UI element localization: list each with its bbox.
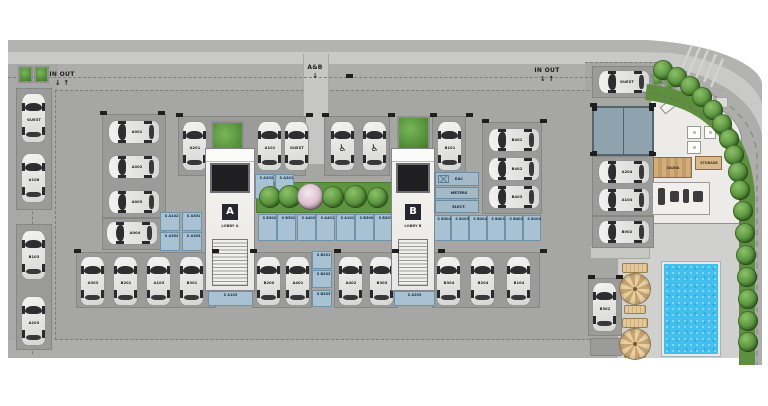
wall-column-mark bbox=[346, 74, 353, 78]
parking-spot-label: B104 bbox=[513, 281, 524, 285]
wall-column-mark bbox=[466, 113, 473, 117]
bottom-apron bbox=[8, 340, 658, 358]
gym-equipment-icon bbox=[670, 191, 679, 202]
parking-spot-label: A201 bbox=[189, 146, 200, 150]
storage-unit-label: S B303 bbox=[379, 216, 389, 220]
car-rear-window bbox=[261, 295, 276, 300]
wall-column-mark bbox=[616, 275, 623, 279]
parking-spot-car: A106 bbox=[21, 153, 46, 203]
storage-unit-label: S B204 bbox=[473, 217, 482, 221]
lobby-label: LOBBY A bbox=[216, 224, 245, 228]
parking-spot-label: B204 bbox=[477, 281, 488, 285]
shaft-hatch-icon bbox=[438, 175, 449, 183]
parking-spot-label: A204 bbox=[622, 170, 633, 174]
car-windshield bbox=[334, 131, 351, 139]
wall-column-mark bbox=[540, 119, 547, 123]
parking-pad bbox=[590, 338, 622, 356]
pool-lounger bbox=[624, 305, 646, 314]
wall-column-mark bbox=[430, 113, 437, 117]
canopy-divider bbox=[623, 108, 624, 154]
wall-column-mark bbox=[649, 152, 656, 156]
storage-unit-label: S A102 bbox=[165, 214, 175, 218]
parking-spot-label: B200 bbox=[263, 281, 274, 285]
car-rear-window bbox=[184, 295, 199, 300]
parking-spot-label: A103 bbox=[153, 281, 164, 285]
storage-unit-label: S B201 bbox=[317, 253, 327, 257]
car-windshield bbox=[510, 266, 527, 274]
wall-column-mark bbox=[334, 249, 341, 253]
storage-unit-label: S A203 bbox=[403, 293, 426, 297]
storage-unit-label: S A202 bbox=[260, 176, 270, 180]
site-plan: S A202S A201S A102S A301S A302S A303S A1… bbox=[0, 0, 768, 406]
car-windshield bbox=[117, 266, 134, 274]
utility-room-label: EAC bbox=[455, 177, 463, 181]
storage-unit-label: S A201 bbox=[280, 176, 290, 180]
car-windshield bbox=[498, 189, 506, 205]
storage-unit-label: S A101 bbox=[341, 216, 351, 220]
car-windshield bbox=[608, 74, 616, 90]
storage-unit: S B301 bbox=[277, 214, 296, 241]
car-rear-window bbox=[26, 269, 41, 274]
parking-spot-car: B002 bbox=[598, 220, 650, 244]
parking-spot-car: B401 bbox=[488, 128, 540, 152]
wall-column-mark bbox=[392, 249, 399, 253]
parking-spot-handicap-car: ♿ bbox=[330, 121, 355, 171]
wall-column-mark bbox=[482, 119, 489, 123]
storage-unit: S A102 bbox=[160, 212, 180, 231]
lobby-label: LOBBY B bbox=[400, 224, 425, 228]
storage-unit-label: S A301 bbox=[187, 214, 197, 218]
storage-unit-label: S A401 bbox=[321, 216, 331, 220]
parking-spot-label: A106 bbox=[28, 178, 39, 182]
parking-spot-car: A004 bbox=[106, 221, 158, 245]
wall-column-mark bbox=[588, 275, 595, 279]
entrance-arrows: ↓ ↑ bbox=[529, 75, 565, 83]
parking-spot-label: B103 bbox=[28, 255, 39, 259]
car-rear-window bbox=[475, 295, 490, 300]
car-windshield bbox=[498, 161, 506, 177]
car-windshield bbox=[261, 131, 278, 139]
parking-spot-car: GUEST bbox=[21, 93, 46, 143]
entrance-arrows: ↓ ↑ bbox=[44, 79, 80, 87]
car-windshield bbox=[498, 132, 506, 148]
planter-box bbox=[397, 116, 430, 152]
car-rear-window bbox=[639, 165, 644, 179]
car-windshield bbox=[288, 131, 305, 139]
parking-spot-car: B402 bbox=[488, 157, 540, 181]
storage-unit: S B302 bbox=[258, 214, 277, 241]
parking-spot-label: A004 bbox=[130, 231, 141, 235]
storage-room-label: STORAGE bbox=[700, 161, 717, 165]
parking-spot-car: A203 bbox=[21, 296, 46, 346]
parking-spot-car: B103 bbox=[21, 230, 46, 280]
tower-letter-badge: B bbox=[405, 204, 421, 220]
car-windshield bbox=[474, 266, 491, 274]
lobby-entry bbox=[206, 149, 254, 162]
storage-unit: S B104 bbox=[523, 215, 541, 241]
parking-spot-car: GUEST bbox=[284, 121, 309, 171]
car-windshield bbox=[596, 292, 613, 300]
entrance-sign-label: IN OUT bbox=[529, 67, 565, 74]
parking-spot-label: B302 bbox=[599, 307, 610, 311]
parking-spot-car: A001 bbox=[108, 120, 160, 144]
umbrella-icon bbox=[620, 329, 650, 359]
parking-spot-label: B304 bbox=[443, 281, 454, 285]
parking-spot-car: A201 bbox=[182, 121, 207, 171]
storage-unit-label: S B401 bbox=[491, 217, 500, 221]
hedge-tree-icon bbox=[736, 245, 756, 265]
car-windshield bbox=[608, 224, 616, 240]
car-windshield bbox=[373, 266, 390, 274]
entrance-sign-label: A&B bbox=[300, 64, 330, 71]
wall-column-mark bbox=[100, 111, 107, 115]
parking-spot-label: B403 bbox=[512, 195, 523, 199]
utility-room-label: METERS bbox=[450, 191, 467, 195]
tree-icon bbox=[367, 187, 388, 208]
planter-box bbox=[18, 66, 33, 83]
storage-unit-label: S B302 bbox=[263, 216, 273, 220]
storage-unit: S B300 bbox=[355, 214, 374, 241]
car-windshield bbox=[25, 103, 42, 111]
storage-unit-label: S B104 bbox=[527, 217, 536, 221]
parking-spot-car: A303 bbox=[80, 256, 105, 306]
swimming-pool bbox=[662, 262, 720, 356]
parking-spot-label: B303 bbox=[376, 281, 387, 285]
car-windshield bbox=[608, 164, 616, 180]
parking-spot-label: B401 bbox=[512, 138, 523, 142]
storage-unit-label: S B304 bbox=[437, 217, 446, 221]
car-windshield bbox=[116, 225, 124, 241]
wall-column-mark bbox=[176, 113, 183, 117]
storage-unit: S A203 bbox=[394, 291, 435, 306]
storage-room: STORAGE bbox=[695, 156, 722, 170]
entrance-left: IN OUT↓ ↑ bbox=[44, 71, 80, 87]
utility-room-label: ELECT. bbox=[452, 204, 466, 208]
car-windshield bbox=[608, 192, 616, 208]
parking-spot-label: A104 bbox=[622, 198, 633, 202]
car-rear-window bbox=[118, 295, 133, 300]
car-rear-window bbox=[374, 295, 389, 300]
storage-unit-label: S A302 bbox=[165, 234, 175, 238]
car-windshield bbox=[289, 266, 306, 274]
car-rear-window bbox=[442, 160, 457, 165]
parking-spot-label: A001 bbox=[132, 130, 143, 134]
tower-b-core: BLOBBY B bbox=[391, 148, 435, 291]
storage-unit: S B201 bbox=[312, 251, 332, 269]
storage-unit: S A401 bbox=[316, 214, 335, 241]
hedge-tree-icon bbox=[738, 332, 758, 352]
wall-column-mark bbox=[540, 249, 547, 253]
parking-spot-car: B301 bbox=[179, 256, 204, 306]
parking-spot-label: A203 bbox=[28, 321, 39, 325]
storage-unit: S A301 bbox=[182, 212, 202, 231]
car-rear-window bbox=[639, 75, 644, 89]
car-rear-window bbox=[441, 295, 456, 300]
parking-spot-label: B301 bbox=[186, 281, 197, 285]
elevator-shaft bbox=[396, 163, 430, 193]
storage-unit-label: S B300 bbox=[360, 216, 370, 220]
car-rear-window bbox=[597, 321, 612, 326]
parking-spot-label: B002 bbox=[622, 230, 633, 234]
sauna-label: SAUNA bbox=[666, 166, 679, 170]
utility-room: EAC bbox=[435, 172, 479, 186]
gym-equipment-icon bbox=[658, 188, 665, 205]
car-rear-window bbox=[511, 295, 526, 300]
elevator-shaft bbox=[210, 163, 250, 193]
hedge-tree-icon bbox=[738, 311, 758, 331]
wall-column-mark bbox=[590, 103, 597, 107]
storage-unit: S B304 bbox=[433, 215, 451, 241]
parking-spot-car: B104 bbox=[506, 256, 531, 306]
storage-unit-label: S A103 bbox=[218, 293, 243, 297]
parking-spot-label: A401 bbox=[292, 281, 303, 285]
storage-unit: S B401 bbox=[487, 215, 505, 241]
bathroom-fixture bbox=[687, 141, 701, 154]
storage-unit: S A302 bbox=[160, 232, 180, 251]
parking-spot-label: B101 bbox=[444, 146, 455, 150]
storage-unit-label: S B103 bbox=[455, 217, 464, 221]
storage-unit: S B402 bbox=[505, 215, 523, 241]
umbrella-icon bbox=[620, 274, 650, 304]
car-windshield bbox=[441, 131, 458, 139]
sauna-room: SAUNA bbox=[653, 157, 692, 178]
storage-unit-label: S A303 bbox=[187, 234, 197, 238]
wall-column-mark bbox=[158, 111, 165, 115]
car-windshield bbox=[118, 124, 126, 140]
hedge-tree-icon bbox=[737, 267, 757, 287]
tower-letter-badge: A bbox=[222, 204, 238, 220]
parking-spot-label: B402 bbox=[512, 167, 523, 171]
parking-spot-car: A003 bbox=[108, 190, 160, 214]
parking-spot-car: B304 bbox=[436, 256, 461, 306]
parking-spot-car: GUEST bbox=[598, 70, 650, 94]
flowering-tree-icon bbox=[297, 183, 324, 210]
car-rear-window bbox=[367, 160, 382, 165]
parking-spot-car: B200 bbox=[256, 256, 281, 306]
car-windshield bbox=[440, 266, 457, 274]
parking-spot-car: A104 bbox=[598, 188, 650, 212]
parking-spot-car: B101 bbox=[437, 121, 462, 171]
storage-unit-label: S B301 bbox=[282, 216, 292, 220]
car-rear-window bbox=[149, 160, 154, 174]
storage-unit-label: S B202 bbox=[317, 272, 327, 276]
car-rear-window bbox=[26, 192, 41, 197]
entrance-lobbies: A&B↓ bbox=[300, 64, 330, 80]
car-rear-window bbox=[187, 160, 202, 165]
car-rear-window bbox=[26, 335, 41, 340]
wall-column-mark bbox=[306, 113, 313, 117]
car-windshield bbox=[25, 163, 42, 171]
lobby-entry bbox=[392, 149, 434, 162]
gym-equipment-icon bbox=[683, 189, 689, 203]
staircase bbox=[398, 239, 428, 286]
parking-spot-car: A402 bbox=[338, 256, 363, 306]
car-windshield bbox=[118, 159, 126, 175]
car-rear-window bbox=[529, 162, 534, 176]
hedge-tree-icon bbox=[733, 201, 753, 221]
car-windshield bbox=[25, 306, 42, 314]
parking-spot-label: A003 bbox=[132, 200, 143, 204]
parking-spot-car: A002 bbox=[108, 155, 160, 179]
guest-bay-line bbox=[585, 62, 657, 63]
parking-spot-car: A101 bbox=[257, 121, 282, 171]
car-windshield bbox=[25, 240, 42, 248]
parking-spot-label: GUEST bbox=[27, 118, 41, 122]
parking-spot-car: B201 bbox=[113, 256, 138, 306]
car-windshield bbox=[183, 266, 200, 274]
parking-spot-car: B302 bbox=[592, 282, 617, 332]
car-rear-window bbox=[262, 160, 277, 165]
car-rear-window bbox=[343, 295, 358, 300]
storage-unit-label: S B402 bbox=[509, 217, 518, 221]
storage-unit: S B204 bbox=[469, 215, 487, 241]
parking-spot-car: B403 bbox=[488, 185, 540, 209]
pool-lounger bbox=[622, 263, 648, 273]
car-rear-window bbox=[151, 295, 166, 300]
car-rear-window bbox=[147, 226, 152, 240]
car-windshield bbox=[260, 266, 277, 274]
parking-spot-handicap-car: ♿ bbox=[362, 121, 387, 171]
wall-column-mark bbox=[212, 249, 219, 253]
car-rear-window bbox=[149, 125, 154, 139]
wall-column-mark bbox=[649, 103, 656, 107]
parking-spot-car: A204 bbox=[598, 160, 650, 184]
trellis-canopy bbox=[592, 106, 654, 156]
wall-column-mark bbox=[322, 113, 329, 117]
wall-column-mark bbox=[438, 249, 445, 253]
storage-unit-label: S B203 bbox=[317, 292, 327, 296]
tree-icon bbox=[344, 185, 367, 208]
pool-lounger bbox=[622, 318, 648, 328]
car-windshield bbox=[366, 131, 383, 139]
parking-spot-label: A402 bbox=[345, 281, 356, 285]
bathroom-fixture bbox=[687, 126, 701, 139]
top-outer-band bbox=[8, 40, 640, 52]
hedge-tree-icon bbox=[738, 289, 758, 309]
wall-column-mark bbox=[250, 249, 257, 253]
entrance-right: IN OUT↓ ↑ bbox=[529, 67, 565, 83]
car-windshield bbox=[342, 266, 359, 274]
parking-spot-car: A401 bbox=[285, 256, 310, 306]
wall-column-mark bbox=[388, 113, 395, 117]
car-rear-window bbox=[85, 295, 100, 300]
car-rear-window bbox=[639, 225, 644, 239]
hedge-tree-icon bbox=[728, 162, 748, 182]
entrance-sign-label: IN OUT bbox=[44, 71, 80, 78]
storage-unit: S B103 bbox=[451, 215, 469, 241]
car-windshield bbox=[186, 131, 203, 139]
car-rear-window bbox=[26, 132, 41, 137]
car-windshield bbox=[150, 266, 167, 274]
hedge-tree-icon bbox=[730, 180, 750, 200]
parking-spot-label: A303 bbox=[87, 281, 98, 285]
storage-unit: S B203 bbox=[312, 290, 332, 307]
gym-equipment-icon bbox=[693, 191, 703, 202]
parking-spot-label: GUEST bbox=[290, 146, 304, 150]
car-rear-window bbox=[335, 160, 350, 165]
tower-a-core: ALOBBY A bbox=[205, 148, 255, 291]
parking-spot-label: A002 bbox=[132, 165, 143, 169]
car-rear-window bbox=[149, 195, 154, 209]
car-windshield bbox=[118, 194, 126, 210]
storage-unit: S B202 bbox=[312, 270, 332, 288]
staircase bbox=[212, 239, 248, 286]
storage-unit: S A101 bbox=[336, 214, 355, 241]
storage-unit: S A402 bbox=[297, 214, 316, 241]
wall-column-mark bbox=[590, 152, 597, 156]
parking-spot-label: GUEST bbox=[620, 80, 634, 84]
storage-unit-label: S A402 bbox=[302, 216, 312, 220]
utility-room: METERS bbox=[435, 187, 479, 199]
hedge-tree-icon bbox=[735, 223, 755, 243]
handicap-icon: ♿ bbox=[338, 144, 346, 154]
parking-spot-car: B204 bbox=[470, 256, 495, 306]
storage-unit: S A303 bbox=[182, 232, 202, 251]
car-rear-window bbox=[639, 193, 644, 207]
car-rear-window bbox=[289, 160, 304, 165]
storage-unit: S A103 bbox=[208, 291, 253, 306]
car-rear-window bbox=[529, 190, 534, 204]
entrance-arrows: ↓ bbox=[300, 72, 330, 80]
car-rear-window bbox=[290, 295, 305, 300]
car-rear-window bbox=[529, 133, 534, 147]
parking-spot-label: A101 bbox=[264, 146, 275, 150]
parking-spot-car: A103 bbox=[146, 256, 171, 306]
wall-column-mark bbox=[74, 249, 81, 253]
handicap-icon: ♿ bbox=[370, 144, 378, 154]
car-windshield bbox=[84, 266, 101, 274]
utility-room: ELECT. bbox=[435, 200, 479, 213]
tree-icon bbox=[322, 186, 344, 208]
parking-spot-label: B201 bbox=[120, 281, 131, 285]
